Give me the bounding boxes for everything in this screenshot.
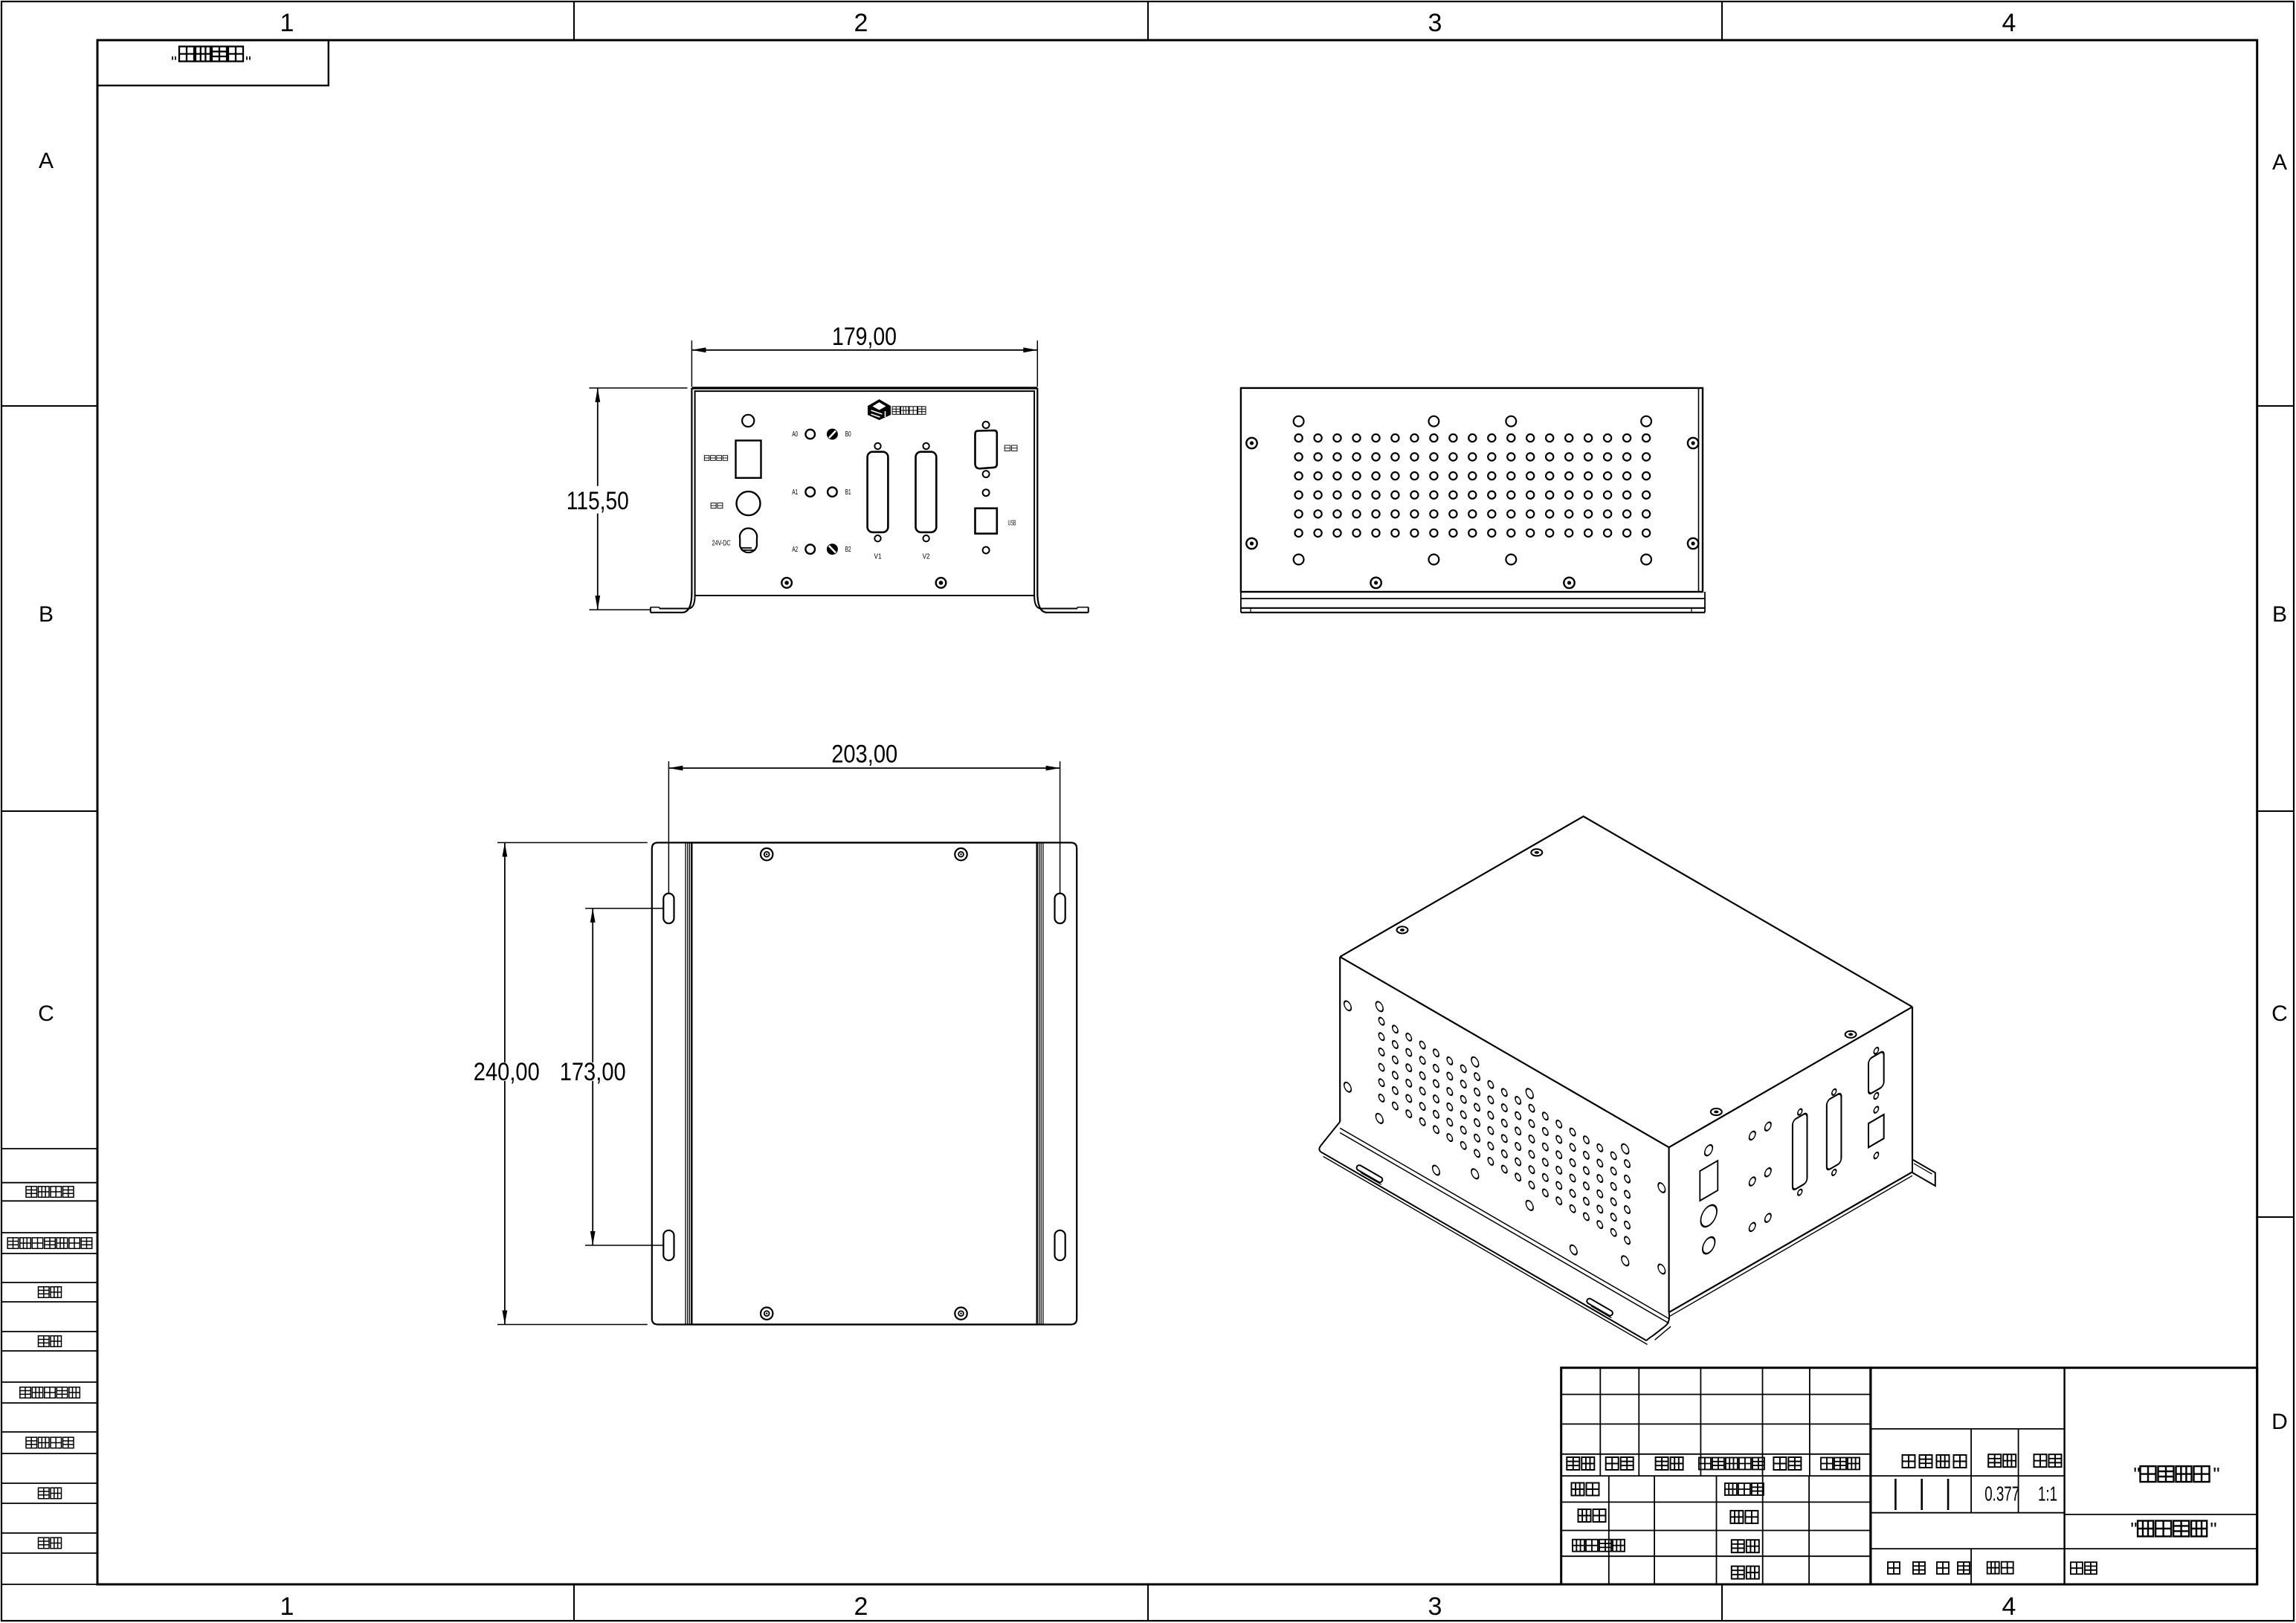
svg-text:179,00: 179,00 xyxy=(832,323,897,351)
svg-text:2: 2 xyxy=(854,1593,868,1621)
svg-text:A1: A1 xyxy=(792,488,798,497)
svg-text:A: A xyxy=(2272,150,2287,175)
svg-text:": " xyxy=(2210,1518,2216,1540)
svg-text:1: 1 xyxy=(280,1593,294,1621)
svg-text:V2: V2 xyxy=(923,553,930,561)
svg-text:": " xyxy=(2130,1518,2137,1540)
svg-text:4: 4 xyxy=(2002,9,2016,37)
svg-text:B0: B0 xyxy=(845,430,851,439)
svg-text:115,50: 115,50 xyxy=(567,487,629,515)
svg-text:3: 3 xyxy=(1428,9,1442,37)
svg-text:C: C xyxy=(2271,1001,2288,1026)
svg-text:B: B xyxy=(2272,602,2287,627)
svg-text:B: B xyxy=(39,602,54,627)
svg-text:24V-DC: 24V-DC xyxy=(712,539,731,548)
svg-text:B1: B1 xyxy=(845,488,851,497)
svg-text:": " xyxy=(171,45,177,63)
svg-text:USB: USB xyxy=(1008,519,1016,528)
svg-text:1: 1 xyxy=(280,9,294,37)
svg-text:B2: B2 xyxy=(845,546,851,554)
svg-text:4: 4 xyxy=(2002,1593,2016,1621)
svg-text:1:1: 1:1 xyxy=(2038,1482,2057,1505)
svg-text:203,00: 203,00 xyxy=(831,740,897,769)
svg-text:3: 3 xyxy=(1428,1593,1442,1621)
svg-text:173,00: 173,00 xyxy=(560,1058,626,1086)
svg-text:A0: A0 xyxy=(792,430,798,439)
svg-text:240,00: 240,00 xyxy=(474,1058,540,1086)
svg-text:A2: A2 xyxy=(792,546,798,554)
svg-text:": " xyxy=(245,45,251,63)
svg-text:": " xyxy=(2133,1463,2140,1485)
svg-text:A: A xyxy=(39,149,54,173)
svg-text:2: 2 xyxy=(854,9,868,37)
svg-text:D: D xyxy=(2271,1410,2288,1434)
svg-text:V1: V1 xyxy=(874,553,882,561)
svg-text:": " xyxy=(2213,1463,2219,1485)
svg-text:0.377: 0.377 xyxy=(1984,1482,2019,1505)
svg-text:C: C xyxy=(38,1001,54,1026)
